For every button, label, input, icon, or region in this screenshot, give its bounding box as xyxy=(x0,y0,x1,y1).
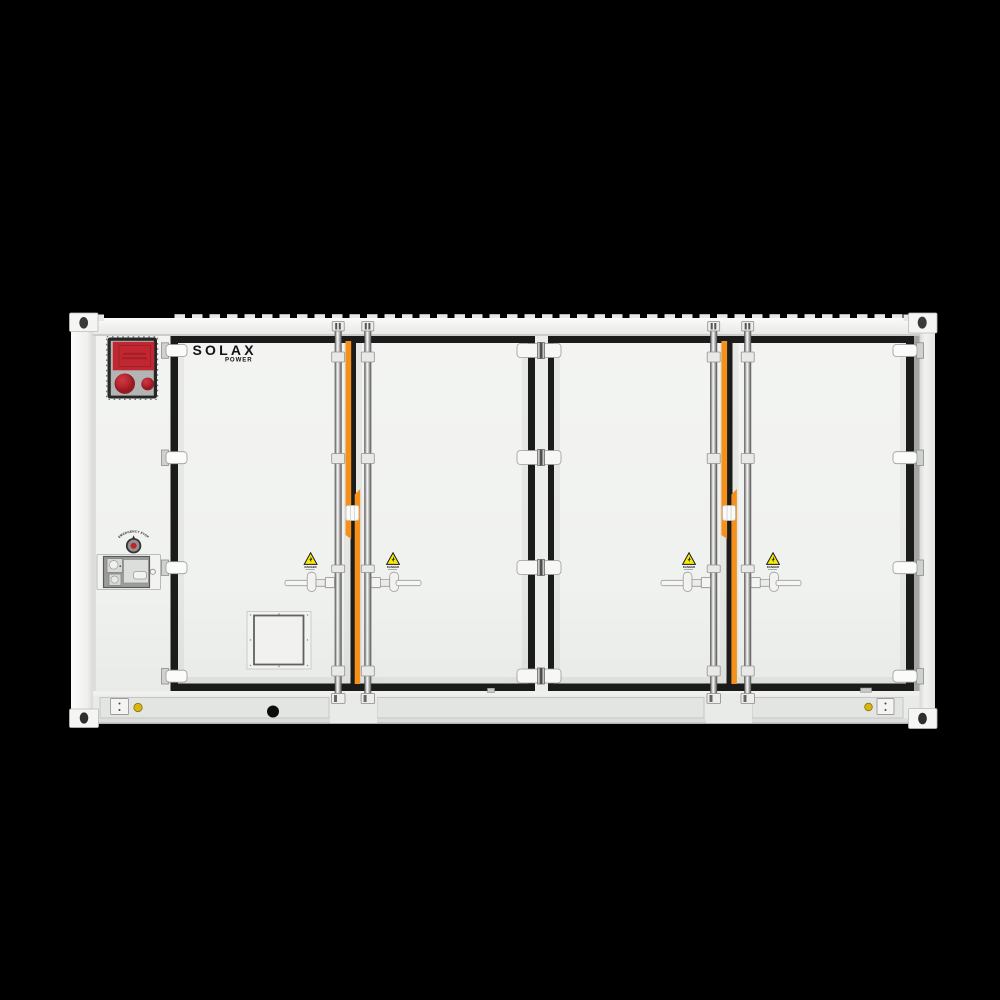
svg-text:DANGER: DANGER xyxy=(304,565,316,569)
svg-text:POWER: POWER xyxy=(225,356,253,363)
svg-text:DANGER: DANGER xyxy=(683,565,695,569)
svg-text:DANGER: DANGER xyxy=(387,565,399,569)
svg-text:DANGER: DANGER xyxy=(767,565,779,569)
